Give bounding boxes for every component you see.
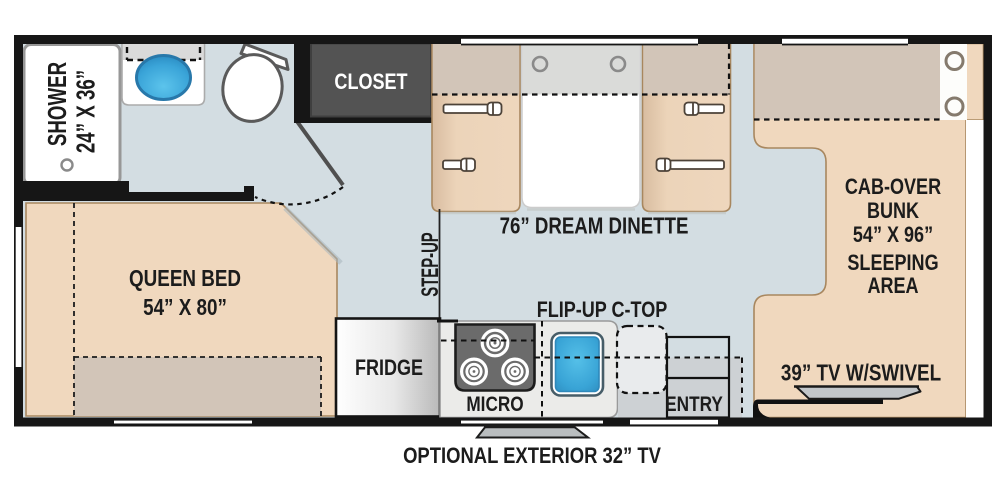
- svg-text:FLIP-UP C-TOP: FLIP-UP C-TOP: [537, 298, 668, 322]
- svg-text:CLOSET: CLOSET: [334, 70, 408, 94]
- svg-text:SHOWER: SHOWER: [42, 62, 72, 146]
- svg-text:FRIDGE: FRIDGE: [355, 356, 423, 380]
- svg-text:BUNK: BUNK: [867, 199, 920, 223]
- svg-text:CAB-OVER: CAB-OVER: [845, 175, 942, 199]
- svg-text:24” X 36”: 24” X 36”: [70, 70, 100, 153]
- svg-text:54” X 96”: 54” X 96”: [853, 223, 933, 247]
- svg-text:MICRO: MICRO: [466, 394, 523, 417]
- svg-text:OPTIONAL EXTERIOR 32” TV: OPTIONAL EXTERIOR 32” TV: [403, 443, 661, 468]
- svg-text:AREA: AREA: [867, 274, 918, 298]
- svg-text:76” DREAM DINETTE: 76” DREAM DINETTE: [500, 214, 689, 239]
- svg-text:ENTRY: ENTRY: [665, 394, 723, 417]
- svg-text:54” X 80”: 54” X 80”: [143, 295, 227, 320]
- svg-text:STEP-UP: STEP-UP: [417, 232, 443, 296]
- svg-text:39” TV W/SWIVEL: 39” TV W/SWIVEL: [781, 361, 941, 386]
- svg-text:SLEEPING: SLEEPING: [847, 251, 938, 275]
- svg-text:QUEEN BED: QUEEN BED: [129, 266, 241, 291]
